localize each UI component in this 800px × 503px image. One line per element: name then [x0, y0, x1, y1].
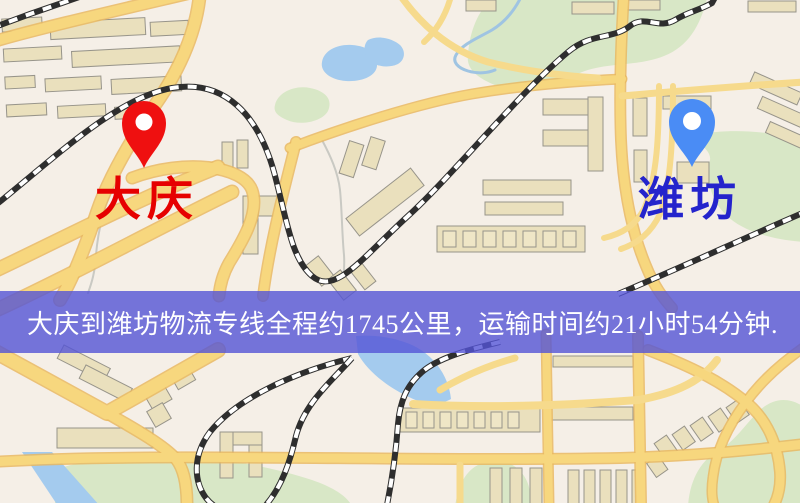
map-background	[0, 0, 800, 503]
route-info-banner: 大庆到潍坊物流专线全程约1745公里，运输时间约21小时54分钟.	[0, 291, 800, 353]
map-screenshot: 大庆 潍坊 大庆到潍坊物流专线全程约1745公里，运输时间约21小时54分钟.	[0, 0, 800, 503]
destination-city-label: 潍坊	[638, 176, 742, 222]
destination-pin-icon[interactable]	[669, 99, 715, 167]
origin-city-label: 大庆	[95, 176, 199, 222]
route-info-text: 大庆到潍坊物流专线全程约1745公里，运输时间约21小时54分钟.	[27, 304, 778, 341]
